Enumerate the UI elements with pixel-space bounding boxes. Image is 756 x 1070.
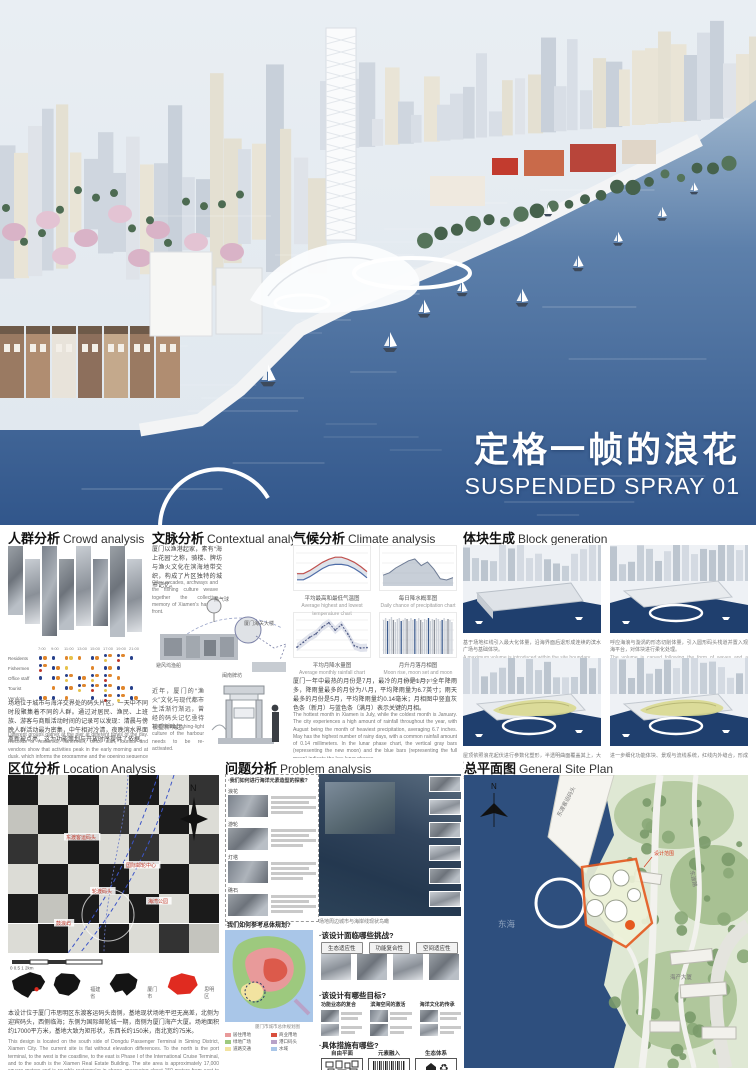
explore-row: 礁石 xyxy=(228,887,316,916)
reference-image xyxy=(429,868,461,884)
location-map-collage: N东渡客运码头国际邮轮中心轮渡码头海湾公园鼓浪屿 xyxy=(8,775,219,953)
region-map-1: 福建省 xyxy=(48,970,105,1000)
goal-groups: 功能业态的复合滨海空间的激活海洋文化的传承 xyxy=(321,1001,461,1036)
block-title-cn: 体块生成 xyxy=(463,531,515,546)
panel-problem-analysis: 问题分析Problem analysis ·我们如何进行海洋元素造型的探索? 浪… xyxy=(225,758,461,1070)
masterplan-legend: 居住用地商业用地绿地广场港口码头道路交通水域 xyxy=(225,1032,313,1052)
poster-title: 定格一帧的浪花 SUSPENDED SPRAY 01 xyxy=(465,433,740,498)
crowd-activity-matrix: 7:009:0011:0013:0015:0017:0019:0021:00Re… xyxy=(8,644,142,703)
reference-image xyxy=(429,799,461,815)
region-map-0 xyxy=(8,970,48,1000)
goals-question: ·该设计有哪些目标? xyxy=(319,990,386,1001)
region-map-3: 思明区 xyxy=(162,970,219,1000)
svg-text:N: N xyxy=(491,782,497,791)
location-paragraph-en: This design is located on the south side… xyxy=(8,1039,219,1070)
chart-moon-phase: 月升月落月相图Moon rise, moon set and moon phas… xyxy=(379,612,457,685)
panel-site-plan: 总平面图General Site Plan xyxy=(464,758,748,1070)
masterplan-map xyxy=(225,930,313,1022)
masterplan-question: ·我们如何参考总体规划? xyxy=(225,920,291,929)
chart-precip-probability: 每日降水概率图Daily chance of precipitation cha… xyxy=(379,545,457,611)
measure-box: 生态体系♻ xyxy=(415,1049,457,1070)
photo-strip xyxy=(8,546,23,615)
explore-title: ·我们如何进行海洋元素造型的探索? xyxy=(228,777,316,784)
svg-text:海产大厦: 海产大厦 xyxy=(670,973,693,981)
presentation-board: 定格一帧的浪花 SUSPENDED SPRAY 01 人群分析Crowd ana… xyxy=(0,0,756,1070)
photo-strip xyxy=(76,546,91,626)
svg-text:东海: 东海 xyxy=(498,919,516,929)
challenges-question: ·该设计面临哪些挑战? xyxy=(319,930,394,941)
marine-element-study-box: ·我们如何进行海洋元素造型的探索? 浪花游轮灯塔礁石 xyxy=(225,774,319,922)
svg-text:N: N xyxy=(190,783,197,793)
white-building xyxy=(150,252,212,336)
location-title-en: Location Analysis xyxy=(63,762,156,776)
block-step-2: 呼应海浪与漩涡的形态切削体量，引入圆形码头栈道并置入观海平台，对体块进行柔化处理… xyxy=(610,545,748,669)
legend-item: 绿地广场 xyxy=(225,1039,267,1045)
challenge-image xyxy=(321,954,351,980)
panel-climate-analysis: 气候分析Climate analysis 平均最高和最低气温图Average h… xyxy=(293,528,457,755)
scale-bar: 0 0.5 1 2km xyxy=(8,956,108,970)
challenge-image xyxy=(357,954,387,980)
photo-strip xyxy=(25,559,40,624)
poster-title-cn: 定格一帧的浪花 xyxy=(465,433,740,470)
reference-image xyxy=(429,845,461,861)
challenge-chips: 生态适应性功能复合性空间适应性文化延续性 xyxy=(321,942,461,954)
reference-image xyxy=(429,891,461,907)
challenge-image xyxy=(393,954,423,980)
svg-text:轮渡码头: 轮渡码头 xyxy=(92,888,112,895)
hero-render-image: 定格一帧的浪花 SUSPENDED SPRAY 01 xyxy=(0,0,756,525)
measure-box: 元素融入 xyxy=(368,1049,410,1070)
reference-image xyxy=(429,776,461,792)
photo-strip xyxy=(110,546,125,637)
siteplan-title-cn: 总平面图 xyxy=(464,761,516,776)
photo-strip xyxy=(42,546,57,636)
block-step-caption: 基于场地红线引入最大化体量，沿海界面后退形成连续的滨水广场与基础体块。 xyxy=(463,640,601,655)
crowd-photo-collage xyxy=(8,544,148,642)
location-title-cn: 区位分析 xyxy=(8,761,60,776)
panel-contextual-analysis: 文脉分析Contextual analysis 厦门以渔港起家，素有“海上花园”… xyxy=(152,528,289,755)
chart-temperature: 平均最高和最低气温图Average highest and lowest tem… xyxy=(293,545,371,618)
label-fishing-boats: 避风坞渔船 xyxy=(156,662,181,669)
aerial-caption: 场地周边城市与海岸线现状鸟瞰 xyxy=(319,918,389,925)
reference-strips xyxy=(429,776,459,914)
explore-row: 浪花 xyxy=(228,788,316,817)
climate-title-en: Climate analysis xyxy=(348,532,435,546)
challenge-image xyxy=(429,954,459,980)
measure-boxes: 自由平面元素融入生态体系♻ xyxy=(321,1049,461,1070)
region-maps: 福建省厦门市思明区 xyxy=(8,970,219,1000)
block-title-en: Block generation xyxy=(518,532,607,546)
challenge-images xyxy=(321,954,461,980)
challenge-chip: 空间适应性 xyxy=(416,942,458,954)
photo-strip xyxy=(93,559,108,626)
label-balloon: 热气球 xyxy=(214,596,229,603)
legend-item: 港口码头 xyxy=(271,1039,313,1045)
svg-text:国际邮轮中心: 国际邮轮中心 xyxy=(126,862,156,869)
legend-item: 商业用地 xyxy=(271,1032,313,1038)
reference-image xyxy=(429,822,461,838)
svg-text:鼓浪屿: 鼓浪屿 xyxy=(56,920,71,927)
location-paragraph-cn: 本设计位于厦门市思明区东渡客运码头南侧，基地现状场地平坦无高差，北侧为迎宾码头，… xyxy=(8,1010,219,1037)
aerial-city-texture xyxy=(325,782,395,834)
shophouse-row xyxy=(0,326,180,398)
explore-rows: 浪花游轮灯塔礁石 xyxy=(228,788,316,916)
svg-text:♻: ♻ xyxy=(439,1063,449,1070)
climate-paragraph-cn: 厦门一年中最热的月份是7月，最冷的月份是1月；全年降雨多，降雨量最多的月份为八月… xyxy=(293,678,457,714)
legend-item: 道路交通 xyxy=(225,1046,267,1052)
climate-paragraph-en: The hottest month in Xiamen is July, whi… xyxy=(293,712,457,763)
climate-title-cn: 气候分析 xyxy=(293,531,345,546)
block-step-caption: 呼应海浪与漩涡的形态切削体量，引入圆形码头栈道并置入观海平台，对体块进行柔化处理… xyxy=(610,640,748,655)
svg-text:海湾公园: 海湾公园 xyxy=(148,898,168,905)
legend-item: 水域 xyxy=(271,1046,313,1052)
region-map-2: 厦门市 xyxy=(105,970,162,1000)
challenge-chip: 功能复合性 xyxy=(369,942,411,954)
explore-row: 灯塔 xyxy=(228,854,316,883)
archway-sketch xyxy=(208,678,288,752)
masterplan-caption: 厦门市城市总体规划图 xyxy=(255,1024,300,1030)
challenge-chip: 生态适应性 xyxy=(321,942,363,954)
poster-title-en: SUSPENDED SPRAY 01 xyxy=(465,474,740,498)
photo-strip xyxy=(127,559,142,632)
contextual-title-cn: 文脉分析 xyxy=(152,531,204,546)
siteplan-title-en: General Site Plan xyxy=(519,762,613,776)
panel-crowd-analysis: 人群分析Crowd analysis 7:009:0011:0013:0015:… xyxy=(8,528,148,755)
legend-item: 居住用地 xyxy=(225,1032,267,1038)
explore-row: 游轮 xyxy=(228,821,316,850)
goal-group: 滨海空间的激活 xyxy=(370,1001,411,1036)
block-step-1: 基于场地红线引入最大化体量，沿海界面后退形成连续的滨水广场与基础体块。A max… xyxy=(463,545,601,662)
photo-strip xyxy=(59,559,74,630)
goal-group: 功能业态的复合 xyxy=(321,1001,362,1036)
panel-location-analysis: 区位分析Location Analysis N东渡客运码头国际邮轮中心轮渡码头海… xyxy=(8,758,219,1070)
aerial-photo xyxy=(319,774,461,916)
contextual-note-en: The fading fishing-light culture of the … xyxy=(152,724,204,753)
svg-text:设计范围: 设计范围 xyxy=(654,850,674,857)
panel-block-generation: 体块生成Block generation 基于场地红线引入最大化体量，沿海界面后… xyxy=(463,528,748,755)
goal-group: 海洋文化的传承 xyxy=(420,1001,461,1036)
label-archway: 闽南牌坊 xyxy=(222,672,242,679)
chart-rainfall: 平均月降水量图Average monthly rainfall chart xyxy=(293,612,371,678)
svg-text:东渡客运码头: 东渡客运码头 xyxy=(66,834,96,841)
measure-box: 自由平面 xyxy=(321,1049,363,1070)
label-customs-house: 厦门海关大楼 xyxy=(244,620,274,627)
site-plan-drawing: N 东渡客运码头 东渡路 东海 海产大厦 设计范围 xyxy=(464,775,748,1068)
landmark-tower xyxy=(326,28,356,240)
